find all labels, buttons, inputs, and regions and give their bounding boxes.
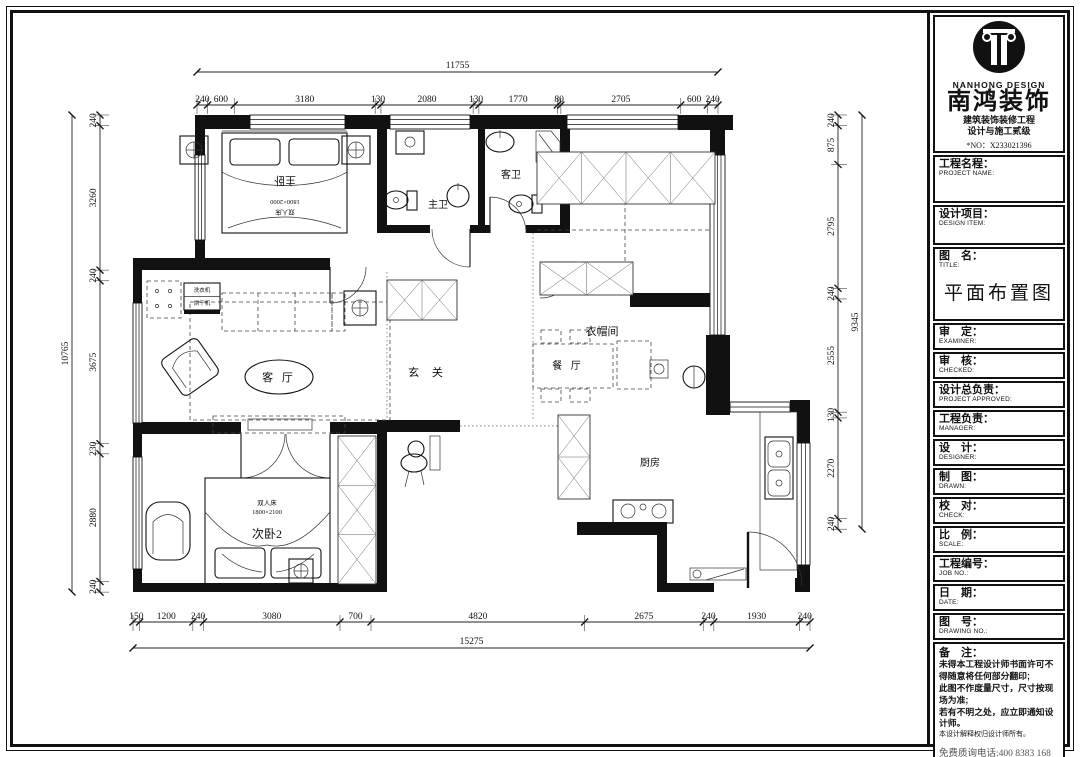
field-drawn: 制 图： DRAWN: bbox=[933, 468, 1065, 495]
dim-top-segment: 2080 bbox=[418, 95, 437, 105]
window-kitchen-pass bbox=[730, 402, 790, 412]
door-master-bath bbox=[432, 229, 470, 267]
field-checked: 审 核： CHECKED: bbox=[933, 352, 1065, 379]
remark-line: 此图不作度量尺寸，尺寸按现场为准; bbox=[939, 683, 1059, 707]
dim-bottom-segment: 4820 bbox=[468, 612, 487, 622]
furniture-foyer bbox=[401, 436, 440, 487]
window-bedroom2-left bbox=[133, 457, 142, 569]
dim-right-segment: 240 bbox=[827, 286, 837, 301]
dim-bottom-segment: 150 bbox=[129, 612, 144, 622]
room-label-master-bath: 主卫 bbox=[428, 199, 448, 211]
dim-top-segment: 1770 bbox=[509, 95, 528, 105]
door-master-bedroom bbox=[330, 267, 366, 303]
bedroom2-bed-size: 1800×2100 bbox=[252, 509, 282, 516]
dim-left-segment: 240 bbox=[89, 579, 99, 594]
dim-top-segment: 80 bbox=[554, 95, 564, 105]
dim-bottom-segment: 3080 bbox=[262, 612, 281, 622]
field-examiner: 审 定： EXAMINER: bbox=[933, 323, 1065, 350]
dim-top-segment: 2705 bbox=[611, 95, 630, 105]
logo-text-cn: 南鸿装饰 bbox=[935, 90, 1063, 115]
dim-left-segment: 240 bbox=[89, 268, 99, 283]
furniture-laundry bbox=[147, 281, 220, 318]
title-block: NANHONG DESIGN 南鸿装饰 建筑装饰装修工程 设计与施工贰级 *NO… bbox=[927, 13, 1067, 744]
remark-line: 若有不明之处，应立即通知设计师。 bbox=[939, 707, 1059, 731]
laundry-washer-label: 洗衣机 bbox=[194, 286, 211, 294]
room-label-kitchen: 厨房 bbox=[640, 456, 660, 469]
dim-bottom-segment: 240 bbox=[701, 612, 716, 622]
field-drawing-no: 图 号： DRAWING NO.: bbox=[933, 613, 1065, 640]
dim-left-segment: 3675 bbox=[89, 352, 99, 371]
dim-right-segment: 2555 bbox=[827, 346, 837, 365]
dim-top-segment: 600 bbox=[687, 95, 702, 105]
ceiling-light-icon bbox=[186, 142, 202, 158]
service-phone: 免费质询电话:400 8383 168 bbox=[939, 745, 1059, 757]
dim-top-segment: 130 bbox=[371, 95, 386, 105]
dim-bottom-segment: 2675 bbox=[634, 612, 653, 622]
window-living-left bbox=[133, 303, 142, 423]
dim-right-overall: 9345 bbox=[851, 312, 861, 331]
field-project-approved: 设计总负责： PROJECT APPROVED: bbox=[933, 381, 1065, 408]
remarks-box: 备 注： 未得本工程设计师书面许可不得随意将任何部分翻印; 此图不作度量尺寸，尺… bbox=[933, 642, 1065, 757]
room-label-living-room: 客 厅 bbox=[262, 370, 296, 384]
dim-top-segment: 240 bbox=[706, 95, 721, 105]
room-label-foyer: 玄 关 bbox=[408, 365, 448, 379]
window-bath-top bbox=[390, 115, 470, 129]
cert-line-2: 设计与施工贰级 bbox=[935, 126, 1063, 137]
dim-right-segment: 240 bbox=[827, 516, 837, 531]
floor-plan: 主卧 1800×2000 双人床 主卫 客卫 衣帽间 玄 关 客 厅 餐 厅 厨… bbox=[0, 0, 1080, 757]
field-check: 校 对： CHECK: bbox=[933, 497, 1065, 524]
dim-bottom-segment: 700 bbox=[348, 612, 363, 622]
license-no: *NO：X233021396 bbox=[935, 140, 1063, 151]
dim-right-segment: 875 bbox=[827, 138, 837, 153]
furniture-dining bbox=[533, 330, 651, 402]
remarks-title: 备 注： bbox=[939, 647, 1059, 659]
dim-top-overall: 11755 bbox=[446, 61, 470, 71]
dim-left-segment: 240 bbox=[89, 113, 99, 128]
fixtures-master-bath bbox=[384, 131, 469, 210]
remark-small: 本设计解释权归设计师所有。 bbox=[939, 730, 1059, 741]
laundry-dryer-label: 烘干机 bbox=[194, 299, 211, 307]
room-label-cloakroom: 衣帽间 bbox=[586, 324, 619, 338]
dim-left-segment: 3260 bbox=[89, 188, 99, 207]
cert-line-1: 建筑装饰装修工程 bbox=[935, 115, 1063, 126]
remark-line: 未得本工程设计师书面许可不得随意将任何部分翻印; bbox=[939, 659, 1059, 683]
dimension-chains: 2406003180130208013017708027056002401175… bbox=[61, 61, 866, 652]
room-label-bedroom2: 次卧2 bbox=[252, 527, 282, 541]
field-manager: 工程负责： MANAGER: bbox=[933, 410, 1065, 437]
window-master-bedroom-left bbox=[195, 155, 205, 240]
drawing-title-value: 平面布置图 bbox=[939, 278, 1059, 305]
dim-bottom-segment: 1930 bbox=[747, 612, 766, 622]
field-designer: 设 计： DESIGNER: bbox=[933, 439, 1065, 466]
dim-bottom-segment: 1200 bbox=[157, 612, 176, 622]
master-bed-size: 1800×2000 bbox=[270, 198, 300, 205]
window-cloakroom-top bbox=[567, 115, 678, 129]
door-entry bbox=[748, 532, 802, 588]
field-date: 日 期： DATE: bbox=[933, 584, 1065, 611]
furniture-kitchen bbox=[613, 360, 797, 580]
logo-box: NANHONG DESIGN 南鸿装饰 建筑装饰装修工程 设计与施工贰级 *NO… bbox=[933, 15, 1065, 153]
ceiling-light-icon bbox=[352, 300, 368, 316]
dim-left-segment: 230 bbox=[89, 441, 99, 456]
dim-right-segment: 240 bbox=[827, 113, 837, 128]
room-label-guest-bath: 客卫 bbox=[501, 168, 521, 181]
wardrobe-panels bbox=[338, 152, 715, 584]
drawing-sheet: 主卧 1800×2000 双人床 主卫 客卫 衣帽间 玄 关 客 厅 餐 厅 厨… bbox=[0, 0, 1080, 757]
field-job-no: 工程编号： JOB NO.: bbox=[933, 555, 1065, 582]
field-design-item: 设计项目： DESIGN ITEM: bbox=[933, 205, 1065, 245]
field-drawing-title: 图 名： TITLE: 平面布置图 bbox=[933, 247, 1065, 321]
dim-left-segment: 2880 bbox=[89, 508, 99, 527]
window-master-bedroom-top bbox=[250, 115, 345, 129]
nanhong-logo-icon bbox=[971, 20, 1027, 74]
door-bedroom2-left-leaf bbox=[241, 434, 285, 478]
dim-right-segment: 2795 bbox=[827, 217, 837, 236]
window-kitchen-right bbox=[797, 443, 810, 565]
dim-right-segment: 2270 bbox=[827, 458, 837, 477]
dim-top-segment: 600 bbox=[214, 95, 229, 105]
field-project-name: 工程名程： PROJECT NAME: bbox=[933, 155, 1065, 203]
statue-figure bbox=[401, 441, 427, 487]
dim-bottom-segment: 240 bbox=[798, 612, 813, 622]
furniture-bedroom2 bbox=[146, 478, 330, 586]
dim-top-segment: 130 bbox=[469, 95, 484, 105]
room-label-dining-room: 餐 厅 bbox=[552, 359, 584, 372]
dim-bottom-segment: 240 bbox=[191, 612, 206, 622]
door-bedroom2-right-leaf bbox=[286, 434, 330, 478]
dim-top-segment: 3180 bbox=[295, 95, 314, 105]
master-bed-type: 双人床 bbox=[275, 208, 295, 217]
dim-bottom-overall: 15275 bbox=[460, 637, 484, 647]
room-label-master-bedroom: 主卧 bbox=[274, 174, 296, 187]
ceiling-light-icon bbox=[294, 564, 308, 578]
dim-left-overall: 10765 bbox=[61, 341, 71, 365]
dim-top-segment: 240 bbox=[195, 95, 210, 105]
bedroom2-bed-type: 双人床 bbox=[257, 498, 277, 507]
field-scale: 比 例： SCALE: bbox=[933, 526, 1065, 553]
ceiling-light-icon bbox=[348, 142, 364, 158]
dim-right-segment: 130 bbox=[827, 408, 837, 423]
